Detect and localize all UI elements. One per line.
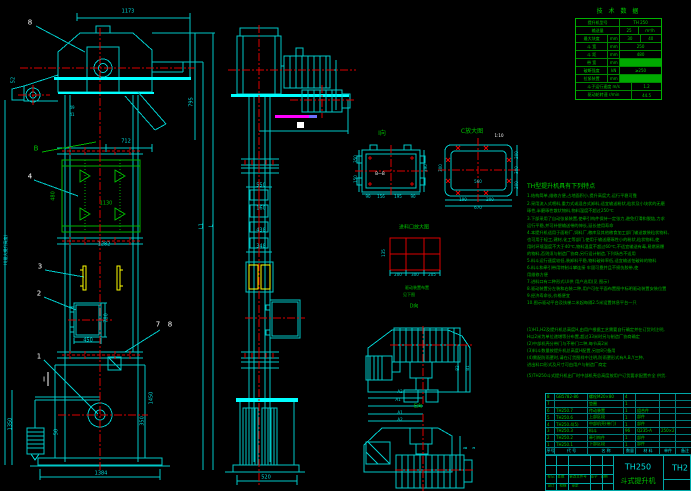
spec-table-row: 带 宽mm [576, 59, 661, 67]
dim-label: 50 [55, 429, 60, 435]
dim-label: A2 [397, 418, 402, 422]
dim-label: 1173 [122, 10, 135, 15]
dim-label: 1450 [150, 392, 155, 405]
dim-label: 156 [377, 195, 385, 199]
spec-table-cell: 斗 距 [576, 51, 608, 58]
dim-label: 90 [410, 195, 415, 199]
parts-cell: 1 [624, 421, 636, 427]
dim-label: 1:10 [495, 134, 504, 138]
dim-label: 135 [382, 249, 386, 257]
parts-cell: 单件 [660, 448, 676, 454]
spec-table: 提升机型号TH 250输送量25m³/h最大块度mm3040斗 宽mm250斗 … [575, 18, 662, 100]
feature-line: (3)料斗数量按提升机总高度H配置,另加8只备用 [527, 348, 615, 354]
dim-label: 438 [256, 229, 266, 234]
parts-cell [676, 408, 691, 414]
dim-label: 1 [37, 354, 41, 361]
drive-platform-bottom-view [364, 414, 472, 488]
dim-label: B—B [375, 172, 385, 176]
spec-table-row: 驱动轮转速 r/min44.5 [576, 91, 661, 99]
spec-table-cell: ≥250 [620, 67, 661, 74]
parts-cell: 螺栓M20×80 [588, 394, 624, 400]
dim-label: 3 [38, 264, 42, 271]
parts-cell: 1 [624, 401, 636, 407]
spec-table-row: 破断强度kN≥250 [576, 67, 661, 75]
dim-label: 480 [52, 191, 57, 201]
dim-label: H(最大提升高度) [4, 235, 8, 265]
parts-cell: 1 [546, 442, 555, 448]
side-elevation-view [225, 28, 350, 485]
dim-label: 200 [486, 198, 494, 202]
spec-table-cell: kN [608, 67, 620, 74]
spec-table-cell: 带 宽 [576, 59, 608, 66]
dim-label: 49 [69, 106, 74, 110]
spec-table-row: 斗 距mm480 [576, 51, 661, 59]
dim-label: 160 [256, 207, 266, 212]
dim-label: A1 [395, 398, 400, 402]
dim-label: 350 [354, 155, 358, 163]
detail-view-C [445, 145, 517, 206]
dim-label: 300 [411, 273, 419, 277]
parts-cell [636, 401, 660, 407]
dim-label: 520 [261, 476, 271, 481]
dim-label: 670 [474, 206, 482, 210]
dim-label: 550 [256, 184, 266, 189]
dim-label: 200 [515, 151, 519, 159]
feature-line: H以2米为单位递增等分布置,超过33米时另与制造厂协商确定 [527, 334, 640, 340]
feature-line: 6.料斗和牵引带用特制斗攀连接 牢固可靠并且不损伤胶带,使 [527, 265, 638, 271]
spec-table-cell: mm [608, 75, 620, 82]
parts-cell: TH250.6 [555, 414, 588, 420]
dim-label: 348 [256, 245, 266, 250]
dim-label: 进料口放大图 [399, 226, 429, 231]
parts-row: 3TH250.3料斗96Q235-A250×2 [546, 428, 691, 435]
dim-label: B1 [466, 365, 470, 370]
parts-cell: 4 [546, 421, 555, 427]
feed-opening-detail [390, 238, 440, 270]
parts-cell [676, 414, 691, 420]
title-block-drawing-no: TH2 [672, 464, 688, 473]
dim-label: B [464, 447, 468, 450]
parts-cell [660, 435, 676, 441]
parts-cell: 序号 [546, 448, 555, 454]
dim-label: L1 [200, 223, 205, 229]
dim-label: 205 [428, 273, 436, 277]
spec-table-title: 技 术 数 据 [575, 6, 662, 15]
parts-cell: 部件 [636, 435, 660, 441]
dim-label: 712 [121, 140, 131, 145]
spec-table-row: 拉紧装置mm [576, 75, 661, 83]
dim-label: 2 [37, 291, 41, 298]
spec-table-cell: 斗 宽 [576, 43, 608, 50]
parts-cell: 名 称 [588, 448, 624, 454]
spec-table-cell: 1.2 [632, 83, 661, 90]
feature-line: 的物料,否则须与制造厂协商,另行设计制造,下列场合不适用 [527, 251, 636, 257]
dim-label: 300 [439, 164, 443, 172]
dim-label: 见下图 [403, 293, 415, 297]
parts-cell [660, 442, 676, 448]
spec-table-cell: 斗子运行速度 m/s [576, 83, 632, 90]
feature-line: (4)需配防雨罩时,请在订货图样中注明,防雨罩形式有A,B,Y三种, [527, 355, 644, 361]
spec-table-cell: 最大块度 [576, 35, 608, 42]
features-title: TH型提升机具有下列特点 [527, 181, 595, 190]
feature-line: (1)H1,H2及提升机总高度H,由用户根据工艺需要自行确定并在订货时注明, [527, 327, 665, 333]
parts-cell: GB5782-86 [555, 394, 588, 400]
dim-label: 190 [459, 198, 467, 202]
dim-label: 驱动装置布置 [405, 286, 429, 290]
parts-row: 1TH250.1下部区段1部件 [546, 442, 691, 449]
title-block: TH250 斗式提升机 TH2 [545, 455, 691, 491]
parts-cell: 250×2 [660, 428, 676, 434]
feature-line: 3.下部采用了自动张紧装置,使牵引构件保持一定张力,避免打滑和脱链,力求 [527, 216, 665, 222]
parts-row: 6TH250.7传动装置1组合件 [546, 408, 691, 415]
parts-cell: 备注 [676, 448, 691, 454]
parts-cell: 材 料 [636, 448, 660, 454]
dim-label: A1 [397, 411, 402, 415]
parts-cell: 上部区段 [588, 414, 624, 420]
parts-cell: 部件 [636, 414, 660, 420]
spec-table-cell [620, 75, 661, 82]
detail-C-centerlines [438, 138, 520, 202]
dim-label: 780 [105, 313, 110, 323]
spec-table-cell: 25 [620, 27, 639, 34]
dim-label: C放大图 [461, 129, 483, 135]
dim-label: 1130 [100, 202, 113, 207]
dim-label: I [43, 377, 45, 384]
parts-cell: 1 [624, 435, 636, 441]
spec-table-cell: 输送量 [576, 27, 620, 34]
parts-cell: 传动装置 [588, 408, 624, 414]
dim-label: E向 [414, 405, 422, 410]
parts-cell: 96 [624, 428, 636, 434]
feature-line: (2)中部机壳分带门与不带门二种,每节高2米 [527, 341, 608, 347]
parts-cell: 数量 [624, 448, 636, 454]
parts-cell: TH250.3 [555, 428, 588, 434]
dim-label: 8 [168, 322, 172, 329]
dim-label: 8 [28, 20, 32, 27]
dim-label: a [472, 447, 476, 449]
parts-cell: 1 [624, 408, 636, 414]
feature-line: 9.经济寿命长,价格便宜 [527, 293, 570, 299]
left-view-centerlines [18, 28, 195, 470]
spec-table-cell: 250 [620, 43, 661, 50]
dim-label: 300 [515, 166, 519, 174]
parts-cell: 组合件 [636, 408, 660, 414]
spec-table-cell: 提升机型号 [576, 19, 620, 26]
left-view-green-details [42, 142, 140, 232]
parts-cell: 5 [546, 414, 555, 420]
dim-label: 1384 [95, 472, 108, 477]
dim-label: I向 [378, 131, 386, 137]
parts-cell [660, 394, 676, 400]
dim-label: B2 [456, 365, 460, 370]
side-view-highlight [275, 115, 317, 128]
spec-table-row: 输送量25m³/h [576, 27, 661, 35]
drive-platform-bottom-centerlines [395, 414, 475, 491]
parts-cell: 4 [624, 394, 636, 400]
feature-line: 4.本提升机适用于面粉厂,饲料厂,粮库及其他粮食加工部门输送散装粒状物料, [527, 230, 669, 236]
feature-line: 5.料斗运行速度较低,装卸料平稳,物料破碎率低,适宜输送怕破碎的物料 [527, 258, 656, 264]
parts-cell: 3 [546, 428, 555, 434]
parts-cell: 中部机壳(带门) [588, 421, 624, 427]
dim-label: 41 [69, 113, 74, 117]
dim-label: 7 [156, 322, 160, 329]
parts-cell: 部件 [636, 421, 660, 427]
spec-table-cell [620, 59, 661, 66]
parts-cell [660, 401, 676, 407]
parts-cell: 下部区段 [588, 442, 624, 448]
spec-table-row: 斗子运行速度 m/s1.2 [576, 83, 661, 91]
title-block-product-name: 斗式提升机 [621, 476, 656, 486]
dim-label: 52 [12, 77, 17, 83]
parts-cell [676, 435, 691, 441]
dim-label: A2 [397, 390, 402, 394]
parts-cell [660, 414, 676, 420]
parts-cell [676, 442, 691, 448]
dim-label: 1350 [9, 418, 14, 431]
parts-cell [676, 401, 691, 407]
dim-label: 1282 [98, 243, 111, 248]
spec-table-cell: TH 250 [620, 19, 661, 26]
dim-label: 350 [141, 416, 146, 426]
parts-cell [660, 421, 676, 427]
parts-cell: 2 [546, 435, 555, 441]
parts-cell: 7 [546, 401, 555, 407]
parts-table: 8GB5782-86螺栓M20×8047垫圈16TH250.7传动装置1组合件5… [545, 393, 691, 455]
section-I-centerlines [355, 145, 428, 197]
feature-line: 琢性,半磨琢性散状物料,物料温度不超过250℃ [527, 208, 614, 214]
spec-table-row: 最大块度mm3040 [576, 35, 661, 43]
spec-table-cell: m³/h [639, 27, 661, 34]
parts-cell: 料斗 [588, 428, 624, 434]
feature-line: 用时环境温度不大于40℃,物料温度不超过60℃,不适宜输送有毒,易燃易爆 [527, 244, 664, 250]
parts-cell: TH250.1 [555, 442, 588, 448]
parts-cell: 6 [546, 408, 555, 414]
feature-line: 用维修方便 [527, 272, 548, 278]
parts-cell: 1 [624, 414, 636, 420]
dim-label: 560 [474, 180, 482, 184]
dim-label: L [210, 225, 215, 228]
dim-label: 90 [365, 195, 370, 199]
parts-row: 4TH250.4(5)中部机壳(带门)1部件 [546, 421, 691, 428]
dim-label: 450 [83, 339, 93, 344]
spec-table-cell: 驱动轮转速 r/min [576, 91, 632, 99]
door-handle-details [80, 266, 123, 290]
dim-label: 4 [28, 174, 32, 181]
parts-cell: 部件 [636, 442, 660, 448]
feature-line: 进出料口形式及尺寸可由用户与制造厂商定 [527, 362, 607, 368]
parts-cell [660, 408, 676, 414]
parts-cell: TH250.7 [555, 408, 588, 414]
spec-table-row: 斗 宽mm250 [576, 43, 661, 51]
spec-table-cell: 30 [620, 35, 640, 42]
feature-line: 8.驱动装置分左装和右装二种,用户可在平面布置图中标明驱动装置安装位置 [527, 286, 666, 292]
feature-line: (5)TH250斗式提升机出厂时中部机壳总高度按用户订货要求配置齐全 供货. [527, 373, 667, 379]
parts-cell [676, 394, 691, 400]
spec-table-cell: 40 [641, 35, 661, 42]
spec-table-cell: 480 [620, 51, 661, 58]
parts-cell [636, 394, 660, 400]
parts-cell: 垫圈 [588, 401, 624, 407]
spec-table-cell: 拉紧装置 [576, 75, 608, 82]
feature-line: 也可用于轻工,建材,化工等部门,使用于输送磨琢性小的粉状,粒状物料,使 [527, 237, 659, 243]
parts-cell: TH250.4(5) [555, 421, 588, 427]
parts-cell: 8 [546, 394, 555, 400]
spec-table-cell: mm [608, 51, 620, 58]
parts-cell: 代 号 [555, 448, 588, 454]
parts-cell: 1 [624, 442, 636, 448]
feature-line: 运行平稳,并可补偿输送带的伸长,延长使用寿命 [527, 223, 613, 229]
dim-label: 200 [394, 273, 402, 277]
parts-row: 8GB5782-86螺栓M20×804 [546, 394, 691, 401]
feature-line: 2.采用流入式喂料,重力式或混合式卸料,适宜输送粉状,粒状及小块状的无磨 [527, 201, 665, 207]
dim-label: 795 [190, 97, 195, 107]
dim-label: 150 [354, 175, 358, 183]
spec-table-cell: mm [608, 59, 620, 66]
parts-row: 2TH250.2牵引构件1部件 [546, 435, 691, 442]
spec-table-row: 提升机型号TH 250 [576, 19, 661, 27]
feature-line: 1.结构简单,维修方便,占地面积小,提升高度大,运行平稳可靠 [527, 193, 637, 199]
dim-label: B [34, 146, 39, 153]
parts-cell [555, 401, 588, 407]
parts-cell: Q235-A [636, 428, 660, 434]
dim-label: 195 [394, 195, 402, 199]
cad-canvas: 11738795524941712B448011301282H(最大提升高度)3… [0, 0, 691, 491]
spec-table-cell: mm [608, 43, 620, 50]
parts-cell: TH250.2 [555, 435, 588, 441]
title-block-model: TH250 [625, 463, 651, 472]
spec-table-cell: 破断强度 [576, 67, 608, 74]
parts-row: 5TH250.6上部区段1部件 [546, 414, 691, 421]
spec-table-cell: 44.5 [632, 91, 661, 99]
dim-label: 200 [515, 181, 519, 189]
feature-line: 10.图示驱动平台及扶梯二米起每隔2.5米设置休息平台一只 [527, 300, 637, 306]
dim-label: 390 [424, 164, 428, 172]
parts-cell [676, 421, 691, 427]
feature-line: 7.进料口有二种形式I,II供 用户选用(见 图示) [527, 279, 609, 285]
dim-label: D向 [410, 305, 419, 310]
parts-row: 7垫圈1 [546, 401, 691, 408]
parts-cell [676, 428, 691, 434]
spec-table-cell: mm [608, 35, 620, 42]
parts-cell: 牵引构件 [588, 435, 624, 441]
